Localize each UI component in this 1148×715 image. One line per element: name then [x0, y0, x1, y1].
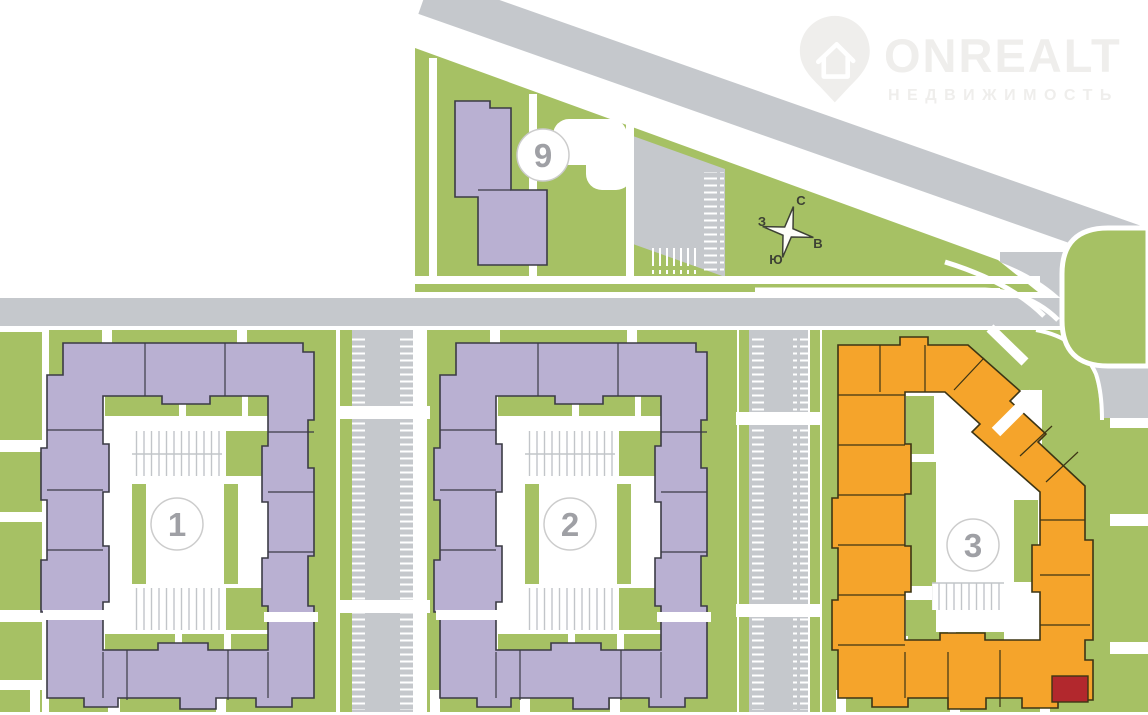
building-9-marker[interactable]: 9: [517, 129, 569, 181]
building-3-number: 3: [964, 527, 982, 564]
building-3-marker[interactable]: 3: [947, 519, 999, 571]
site-plan-page: 1 2 3 9 С З В Ю ONREALT НЕДВИЖИМОСТЬ: [0, 0, 1148, 715]
right-margin-greens: [1108, 428, 1148, 712]
compass-east: В: [813, 236, 822, 251]
building-1-number: 1: [168, 506, 186, 543]
watermark-brand: ONREALT: [884, 29, 1122, 82]
compass-south: Ю: [769, 252, 782, 267]
compass-west: З: [758, 214, 766, 229]
building-9-number: 9: [534, 137, 552, 174]
green-island: [1062, 228, 1148, 366]
building-2-number: 2: [561, 506, 579, 543]
main-road: [0, 298, 1060, 326]
watermark-tagline: НЕДВИЖИМОСТЬ: [888, 87, 1119, 104]
building-1-marker[interactable]: 1: [151, 498, 203, 550]
selected-unit[interactable]: [1052, 676, 1088, 702]
building-2-marker[interactable]: 2: [544, 498, 596, 550]
master-plan-svg: 1 2 3 9 С З В Ю ONREALT НЕДВИЖИМОСТЬ: [0, 0, 1148, 715]
compass-north: С: [796, 193, 806, 208]
courtyard-parking: [932, 583, 1004, 610]
